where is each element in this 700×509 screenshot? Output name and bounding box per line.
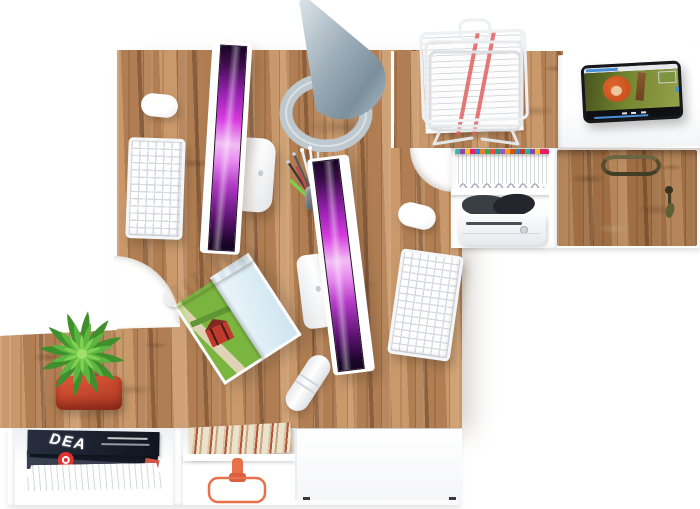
imac-1-glass: [208, 44, 248, 251]
bow-prop: [636, 72, 646, 101]
red-house: [202, 314, 235, 348]
headphones: [205, 458, 269, 504]
fanned-pages: [23, 463, 165, 491]
succulent-plant: [24, 298, 140, 410]
desk-lamp: [276, 0, 398, 152]
storage-unit-right: [451, 148, 700, 248]
books-compartment: [183, 428, 295, 505]
apple-logo-icon: [315, 286, 321, 293]
printer-slot: [466, 222, 522, 225]
printer-drawer: [458, 214, 546, 245]
control-glyph: [622, 112, 627, 114]
pip-thumbnail: [658, 71, 677, 84]
tablet-movie-frame: [584, 69, 680, 112]
unit-left-panel: [8, 428, 15, 505]
keyboard-1: [125, 137, 185, 240]
wire-paper-basket: [412, 18, 538, 150]
control-glyph: [641, 111, 646, 113]
printer-seam: [462, 233, 540, 234]
door-foot: [449, 497, 456, 500]
key-tassel: [665, 202, 676, 218]
imac-2-glass: [312, 158, 365, 372]
magazine-compartment: DEA: [15, 428, 173, 505]
drawer-handle: [601, 155, 661, 176]
imac-2: [294, 148, 370, 380]
unit-divider: [549, 148, 557, 248]
apple-logo-icon: [258, 170, 263, 176]
magazine-text-line: [108, 437, 148, 440]
control-glyph: [631, 112, 636, 114]
books-row: [188, 422, 291, 457]
cabinet-door: [295, 429, 462, 500]
bottom-shelf-unit: DEA: [8, 428, 460, 505]
unit-shelf-board: [451, 188, 551, 195]
magazine-text-line: [101, 443, 149, 446]
badge-glyph: [62, 456, 70, 464]
imac-1: [202, 38, 280, 258]
magazine-1: DEA: [27, 430, 159, 456]
unit-divider: [173, 428, 183, 505]
tablet-screen: [584, 64, 681, 121]
magazine-title: DEA: [48, 430, 88, 453]
wood-drawer-front: [557, 150, 697, 246]
side-button: [676, 87, 679, 92]
door-foot: [303, 497, 310, 500]
imac-1-screen: [200, 41, 253, 255]
tablet-video-player: [581, 60, 684, 123]
office-desk-top-view: DEA: [0, 0, 700, 509]
